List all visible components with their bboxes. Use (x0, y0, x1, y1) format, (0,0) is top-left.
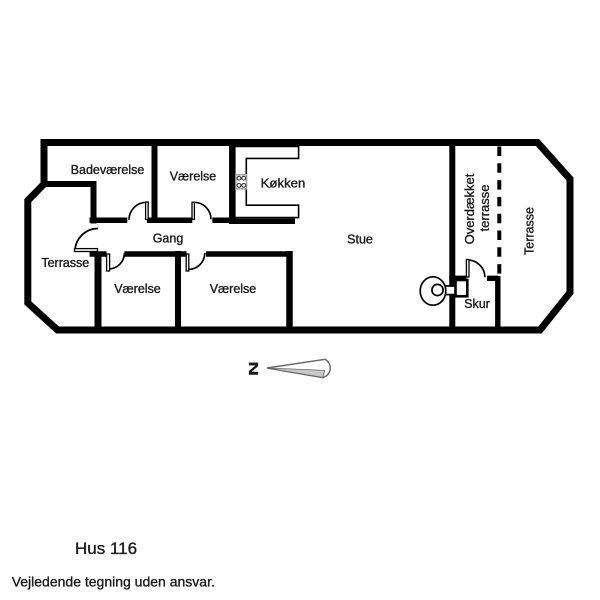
svg-text:Vejledende tegning uden ansvar: Vejledende tegning uden ansvar. (12, 574, 215, 590)
svg-text:Gang: Gang (153, 231, 184, 245)
svg-text:N: N (246, 361, 260, 376)
svg-text:Terrasse: Terrasse (41, 256, 89, 270)
svg-text:Stue: Stue (347, 233, 373, 247)
svg-text:Værelse: Værelse (210, 282, 257, 296)
svg-text:Hus 116: Hus 116 (75, 539, 137, 558)
svg-text:Køkken: Køkken (261, 176, 306, 191)
svg-text:Værelse: Værelse (170, 170, 217, 184)
svg-text:terrasse: terrasse (477, 185, 492, 232)
svg-text:Badeværelse: Badeværelse (71, 163, 145, 177)
svg-text:Værelse: Værelse (114, 282, 161, 296)
svg-text:Skur: Skur (464, 297, 490, 311)
svg-text:Terrasse: Terrasse (523, 207, 537, 255)
svg-text:Overdækket: Overdækket (462, 173, 477, 244)
